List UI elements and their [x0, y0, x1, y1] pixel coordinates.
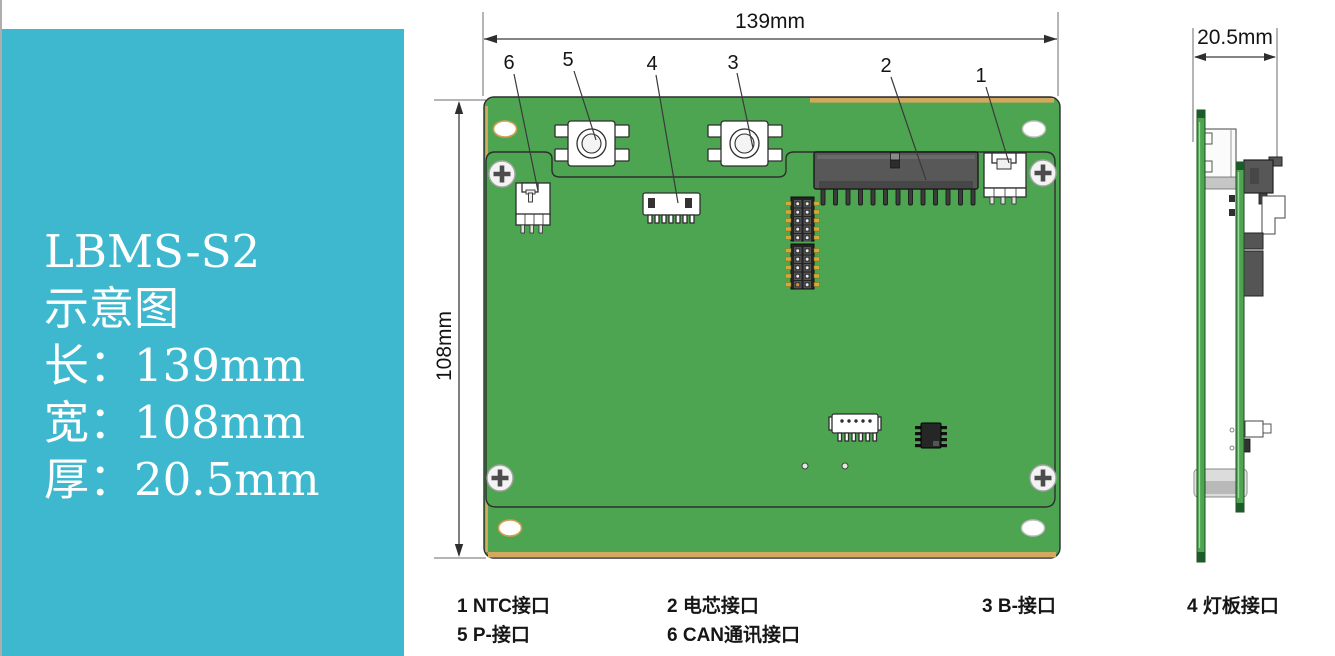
- height-dimension: 108mm: [433, 100, 486, 558]
- mounting-hole-top-left: [494, 121, 517, 137]
- test-point-dot: [802, 463, 808, 469]
- height-dim-label: 108mm: [433, 311, 456, 381]
- pin-detail: [1229, 209, 1235, 216]
- pcb-bottom-edge: [488, 552, 1056, 558]
- b-minus-connector: [984, 153, 1026, 204]
- legend-item-ntc: 1 NTC接口: [457, 591, 550, 618]
- callout-2: 2: [880, 55, 891, 77]
- pin-detail: [1229, 195, 1235, 202]
- can-connector: [516, 183, 550, 233]
- pcb-strip-right: [1236, 162, 1244, 512]
- legend-item-b-minus: 3 B-接口: [982, 591, 1056, 618]
- test-point-dot: [842, 463, 848, 469]
- lamp-connector-side: [1243, 421, 1271, 452]
- connector-housing-side: [1262, 196, 1285, 234]
- callout-3: 3: [727, 52, 738, 74]
- width-dim-label: 139mm: [735, 10, 805, 33]
- page: LBMS-S2 示意图 长：139mm 宽：108mm 厚：20.5mm: [0, 0, 1335, 656]
- screw-top-right-icon: [1030, 160, 1056, 186]
- screw-top-left-icon: [489, 161, 515, 187]
- thickness-dim-label: 20.5mm: [1197, 26, 1273, 49]
- legend-item-lamp-board: 4 灯板接口: [1187, 591, 1279, 618]
- callout-4: 4: [646, 53, 657, 75]
- technical-drawing: 139mm 108mm 6 5 4 3 2 1: [0, 0, 1335, 656]
- legend-item-cell: 2 电芯接口: [667, 591, 759, 618]
- screw-bottom-left-icon: [487, 465, 513, 491]
- front-view: [484, 97, 1060, 558]
- mounting-hole-bottom-right: [1022, 520, 1045, 536]
- pin-detail: [1230, 446, 1234, 450]
- mounting-hole-bottom-left: [499, 520, 522, 536]
- legend-item-can: 6 CAN通讯接口: [667, 620, 800, 647]
- callout-6: 6: [503, 52, 514, 74]
- legend-item-p-minus: 5 P-接口: [457, 620, 530, 647]
- pcb-strip-left: [1197, 110, 1205, 562]
- pcb-inner-board: [486, 152, 1055, 507]
- mounting-hole-top-right: [1023, 121, 1046, 137]
- component-block-side: [1244, 251, 1263, 296]
- side-view: 20.5mm: [1193, 26, 1285, 562]
- pcb-top-edge: [810, 98, 1054, 103]
- component-block-side: [1244, 233, 1263, 249]
- pin-detail: [1230, 428, 1234, 432]
- screw-bottom-right-icon: [1030, 465, 1056, 491]
- callout-5: 5: [562, 49, 573, 71]
- light-board-connector: [643, 193, 700, 223]
- callout-1: 1: [975, 65, 986, 87]
